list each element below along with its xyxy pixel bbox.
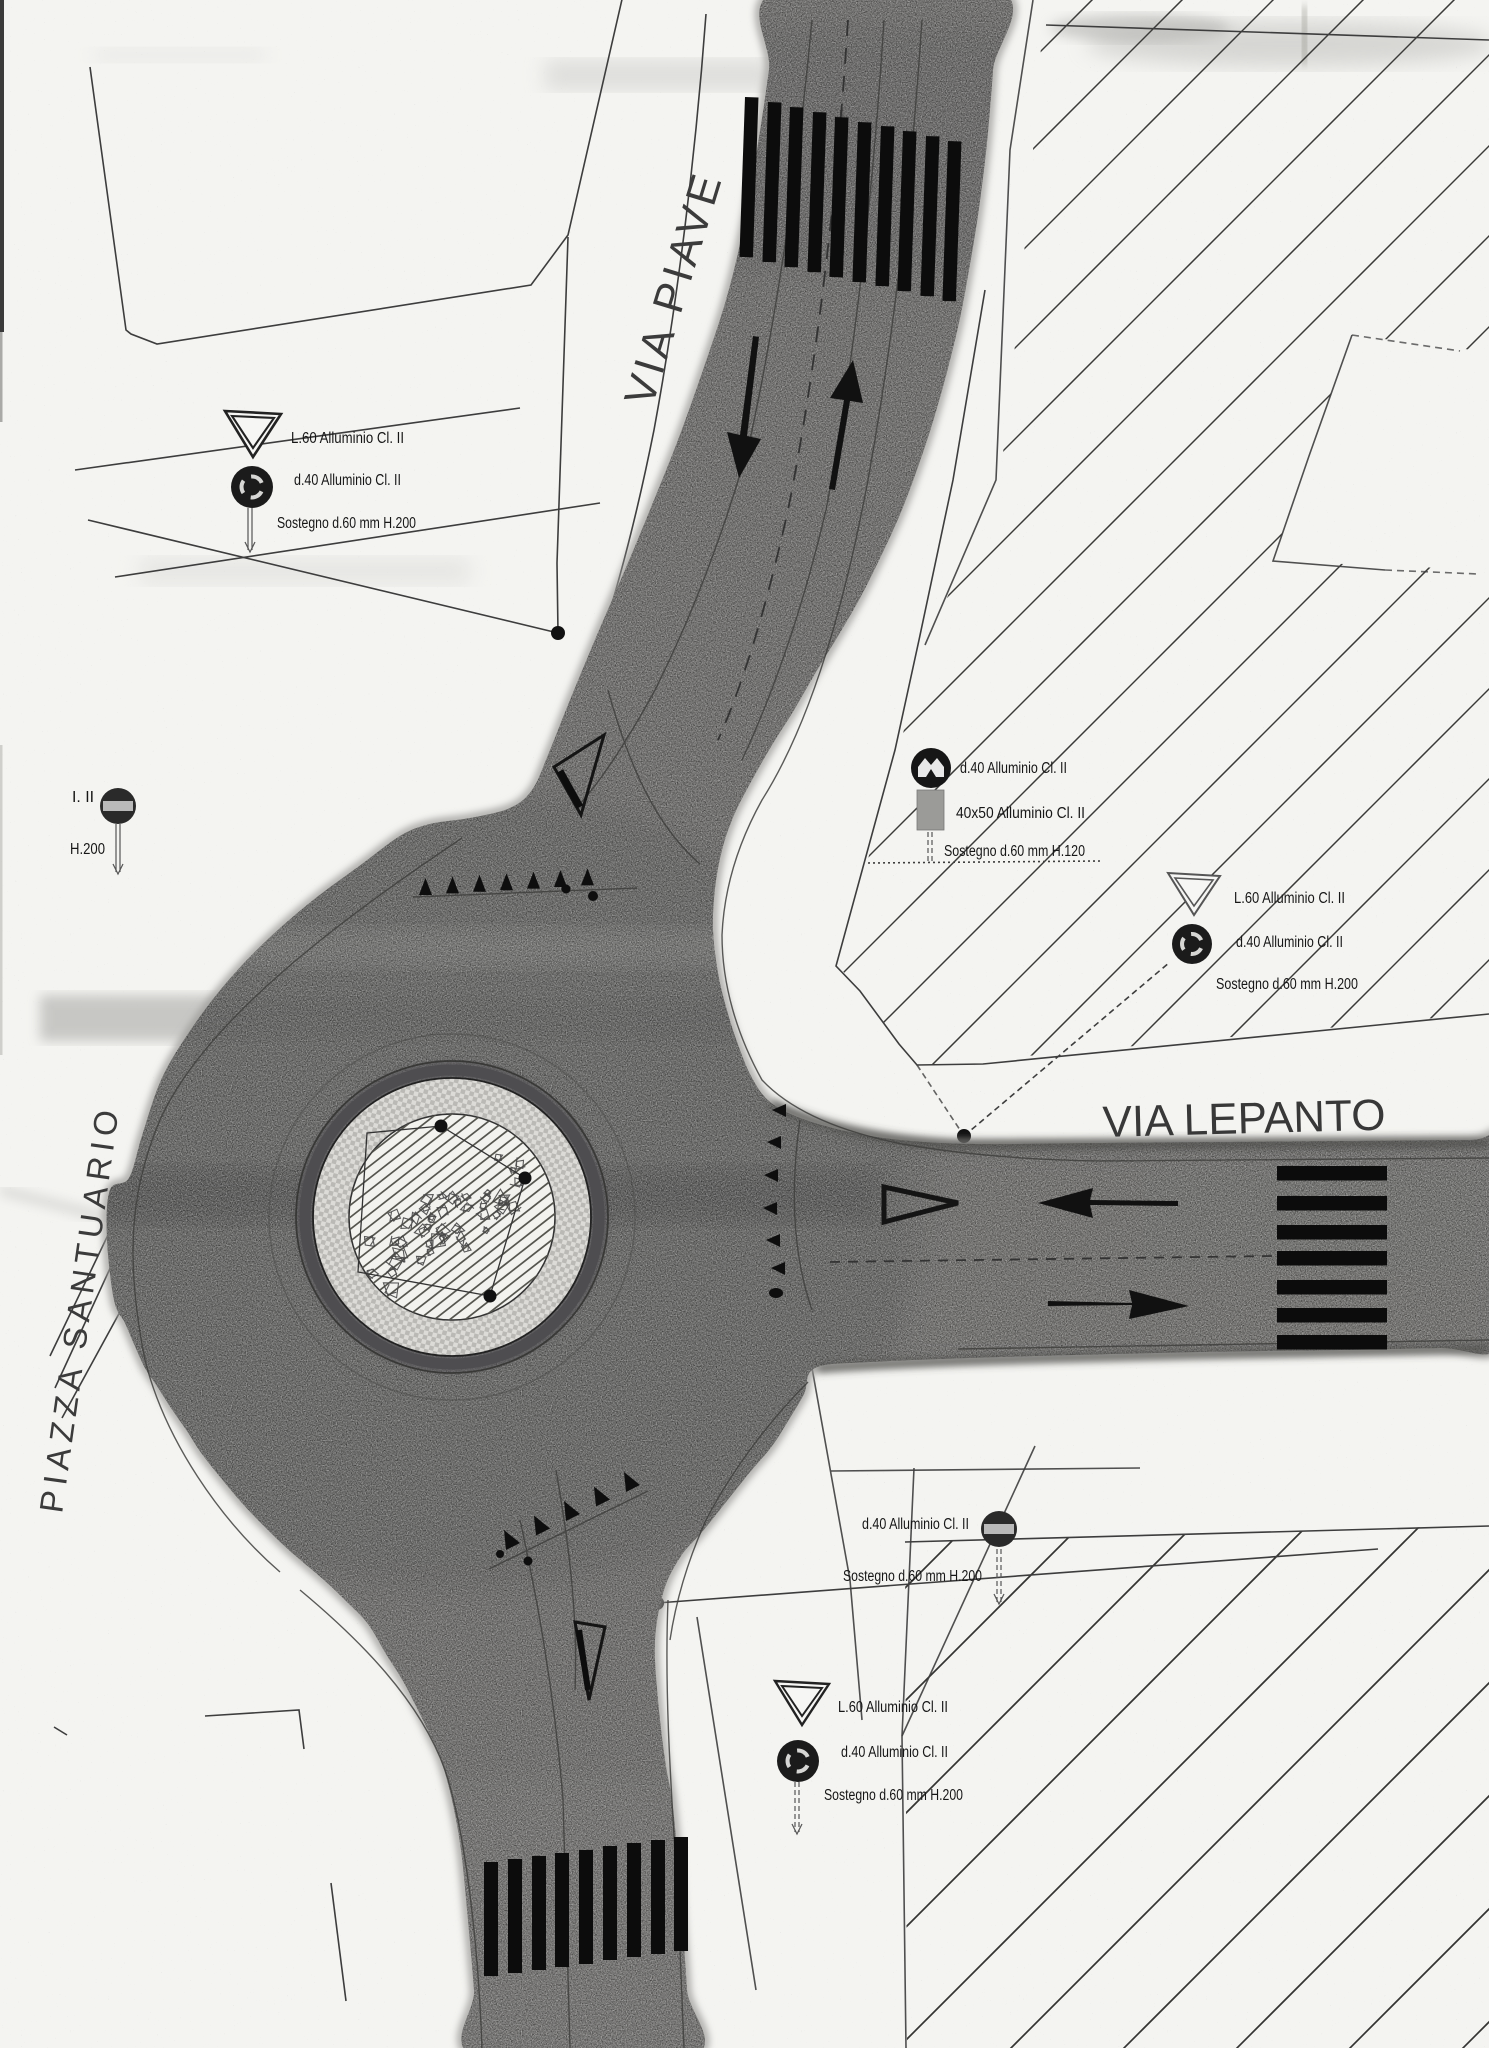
- svg-text:Sostegno d.60 mm H.200: Sostegno d.60 mm H.200: [1216, 976, 1358, 993]
- svg-text:Sostegno d.60 mm H.200: Sostegno d.60 mm H.200: [277, 515, 416, 532]
- svg-text:d.40 Alluminio Cl. II: d.40 Alluminio Cl. II: [960, 760, 1067, 777]
- svg-text:Sostegno d.60 mm H.200: Sostegno d.60 mm H.200: [824, 1787, 963, 1804]
- svg-text:VIA LEPANTO: VIA LEPANTO: [1102, 1091, 1390, 1147]
- svg-text:d.40 Alluminio Cl. II: d.40 Alluminio Cl. II: [1236, 934, 1343, 951]
- svg-text:40x50 Alluminio Cl. II: 40x50 Alluminio Cl. II: [956, 805, 1085, 822]
- svg-text:L.60 Alluminio Cl. II: L.60 Alluminio Cl. II: [291, 430, 404, 447]
- svg-text:H.200: H.200: [70, 841, 105, 858]
- svg-text:d.40 Alluminio Cl. II: d.40 Alluminio Cl. II: [841, 1744, 948, 1761]
- svg-text:Sostegno d.60 mm H.120: Sostegno d.60 mm H.120: [944, 843, 1085, 860]
- svg-text:Sostegno d.60 mm H.200: Sostegno d.60 mm H.200: [843, 1568, 982, 1585]
- svg-text:I. II: I. II: [72, 789, 94, 806]
- svg-text:d.40 Alluminio Cl. II: d.40 Alluminio Cl. II: [862, 1516, 969, 1533]
- svg-text:d.40 Alluminio Cl. II: d.40 Alluminio Cl. II: [294, 472, 401, 489]
- svg-text:L.60 Alluminio Cl. II: L.60 Alluminio Cl. II: [1234, 890, 1345, 907]
- svg-text:L.60 Alluminio Cl. II: L.60 Alluminio Cl. II: [838, 1699, 948, 1716]
